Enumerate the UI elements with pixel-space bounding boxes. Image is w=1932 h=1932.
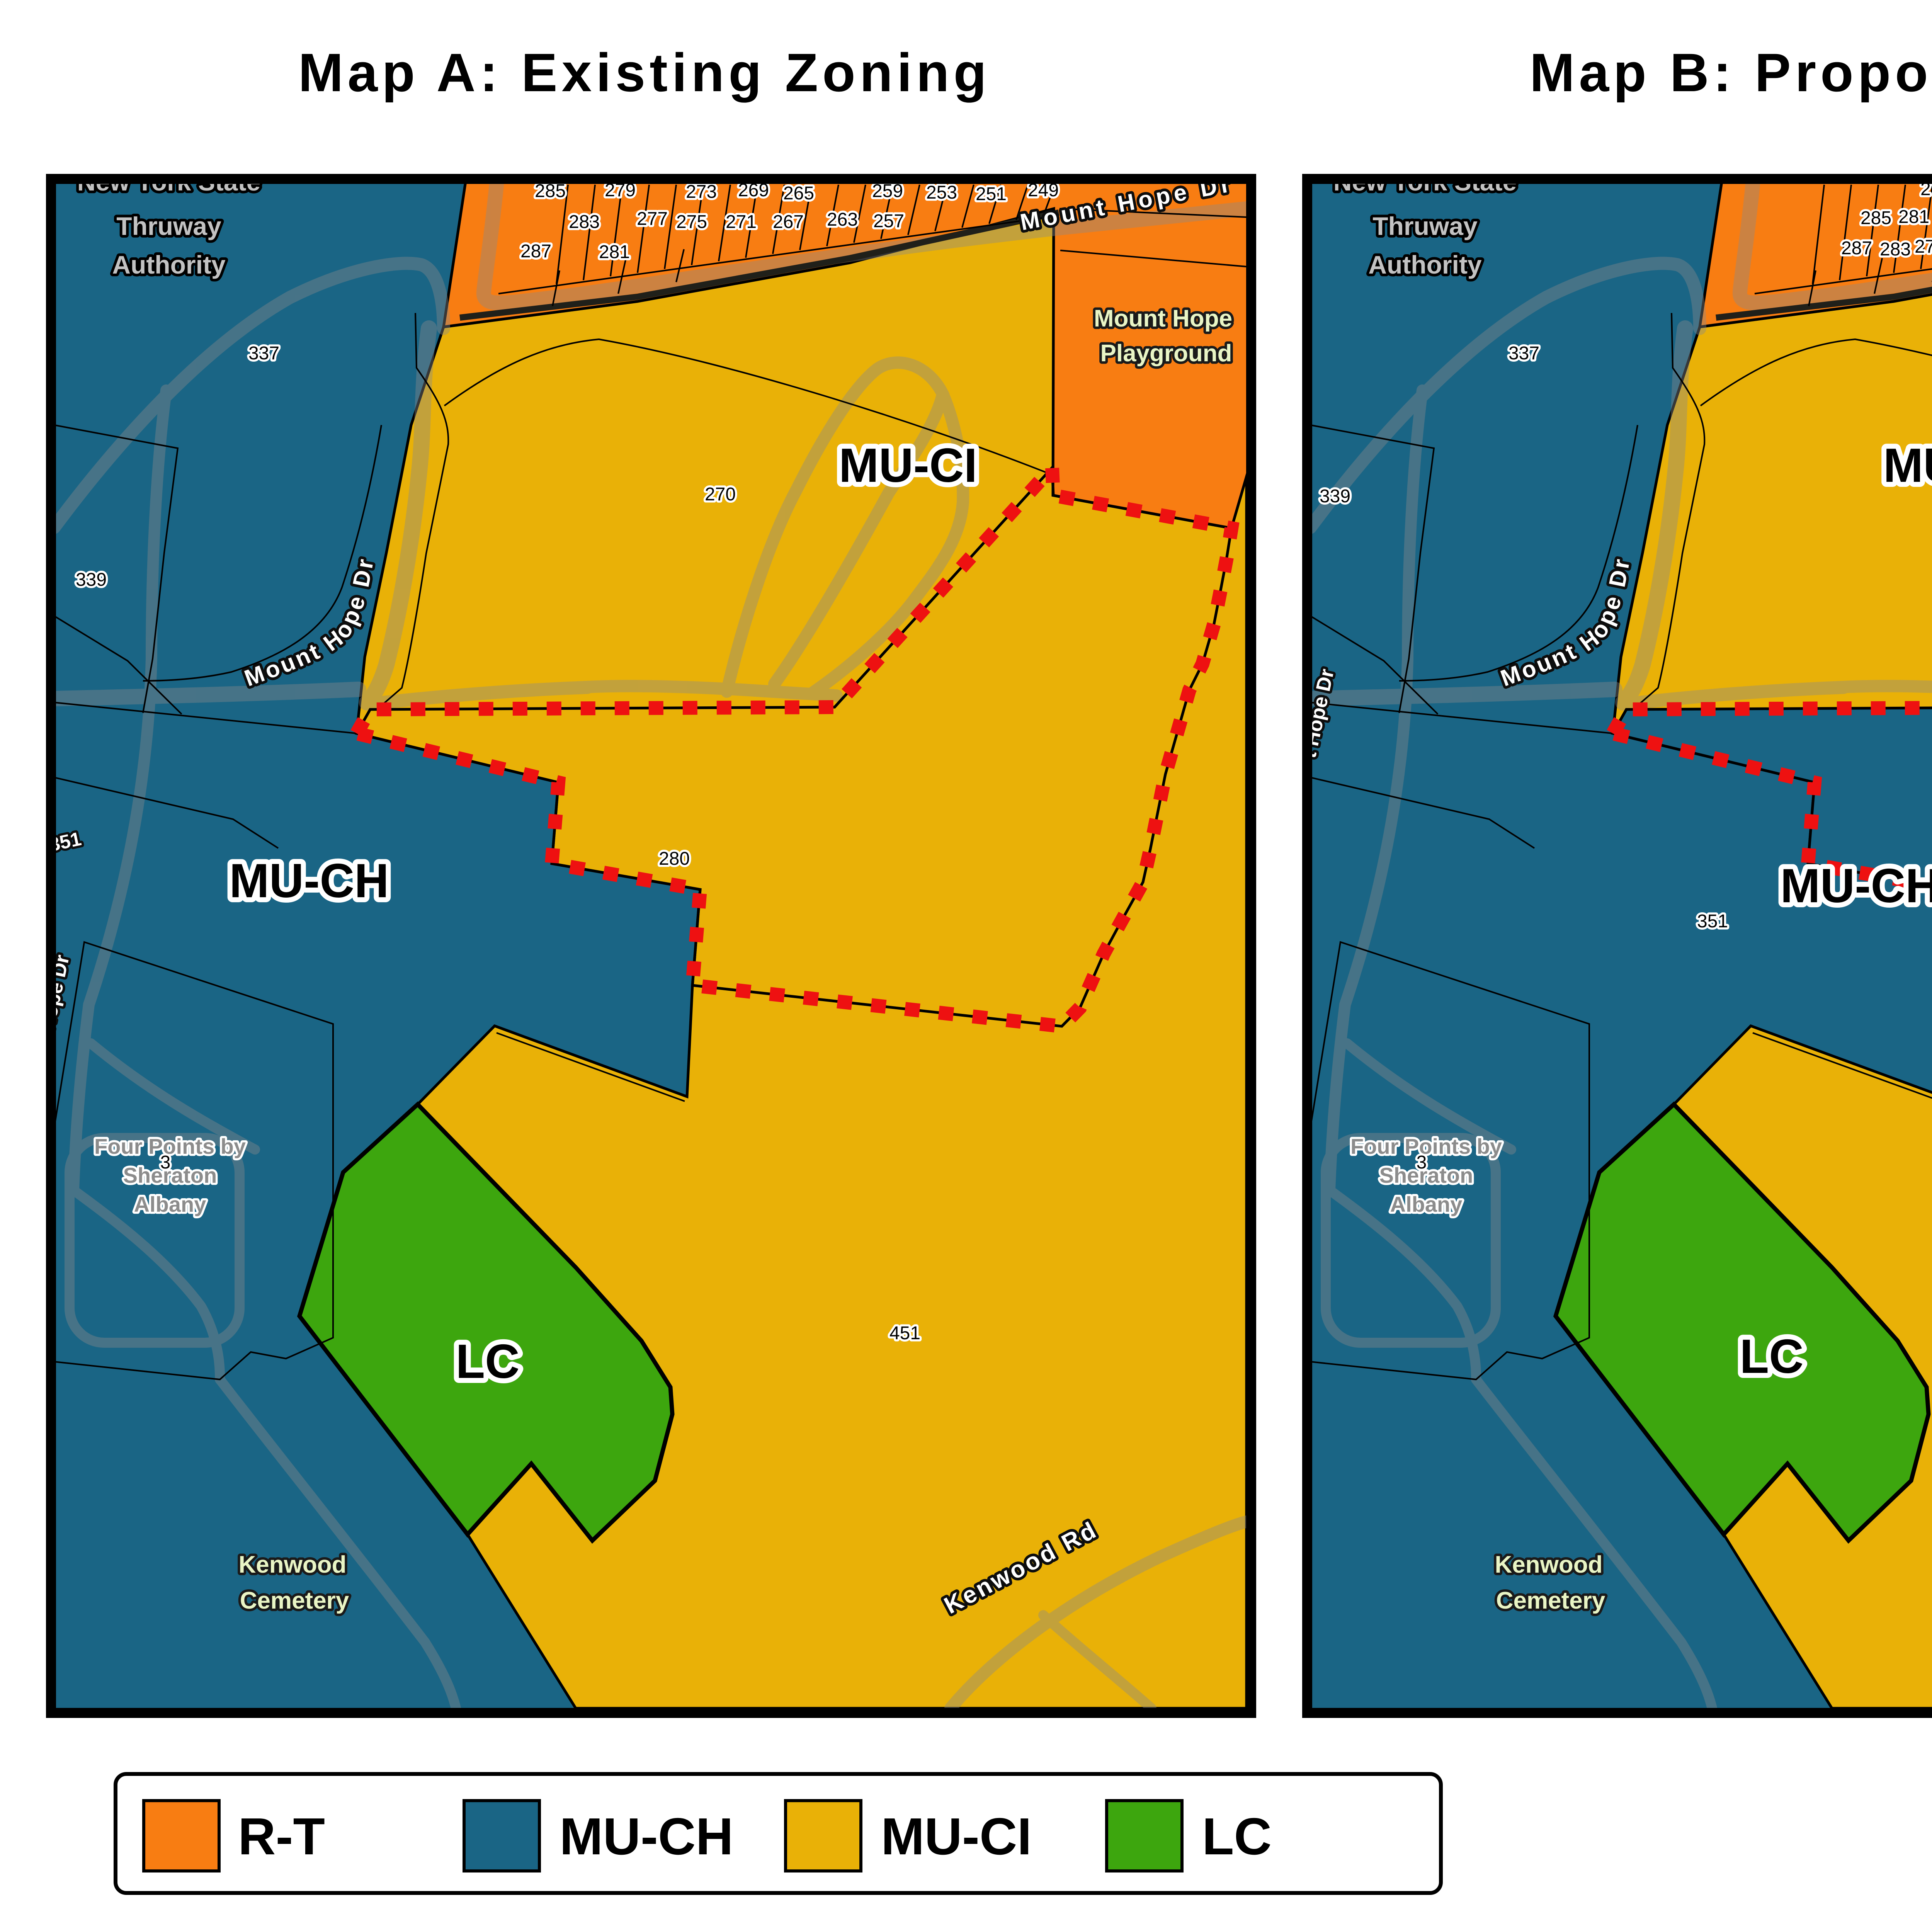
svg-text:451: 451 [889, 1323, 920, 1344]
svg-text:Cemetery: Cemetery [1496, 1587, 1605, 1614]
svg-text:253: 253 [926, 182, 957, 203]
svg-text:279: 279 [1915, 236, 1932, 257]
svg-text:267: 267 [773, 212, 804, 232]
svg-text:283: 283 [1880, 239, 1911, 260]
svg-text:3: 3 [1417, 1152, 1427, 1173]
svg-text:LC: LC [1202, 1807, 1272, 1866]
svg-text:Albany: Albany [1390, 1192, 1463, 1216]
svg-text:271: 271 [726, 212, 757, 232]
svg-text:Albany: Albany [134, 1192, 206, 1216]
svg-text:251: 251 [976, 184, 1007, 204]
svg-text:257: 257 [873, 211, 904, 231]
svg-text:339: 339 [1320, 486, 1350, 507]
svg-text:3: 3 [160, 1152, 171, 1173]
svg-text:Kenwood: Kenwood [239, 1551, 347, 1578]
svg-text:339: 339 [76, 570, 107, 590]
svg-text:Mount Hope: Mount Hope [1094, 305, 1232, 332]
svg-text:283: 283 [569, 212, 600, 232]
svg-text:275: 275 [676, 212, 707, 232]
svg-text:281: 281 [599, 242, 630, 262]
svg-text:281: 281 [1898, 207, 1929, 227]
svg-text:MU-CH: MU-CH [1780, 859, 1932, 913]
svg-text:280: 280 [659, 849, 690, 869]
svg-text:337: 337 [1509, 343, 1539, 364]
svg-text:Map B: Proposed Zoning: Map B: Proposed Zoning [1530, 42, 1932, 103]
svg-text:287: 287 [1841, 238, 1872, 259]
svg-text:Map A: Existing Zoning: Map A: Existing Zoning [298, 42, 991, 103]
svg-text:273: 273 [686, 182, 717, 202]
svg-text:MU-CH: MU-CH [229, 854, 389, 908]
svg-text:351: 351 [1697, 911, 1728, 932]
svg-text:Thruway: Thruway [116, 212, 221, 240]
svg-text:Cemetery: Cemetery [240, 1587, 349, 1614]
svg-text:MU-CI: MU-CI [881, 1807, 1032, 1866]
svg-text:Thruway: Thruway [1372, 212, 1478, 240]
svg-text:277: 277 [637, 209, 668, 229]
svg-text:Kenwood: Kenwood [1495, 1551, 1603, 1578]
svg-text:MU-CI: MU-CI [1883, 439, 1932, 492]
svg-text:LC: LC [1740, 1330, 1803, 1383]
svg-text:Authority: Authority [112, 250, 226, 279]
svg-text:287: 287 [520, 241, 551, 262]
svg-text:MU-CI: MU-CI [839, 439, 977, 492]
svg-text:R-T: R-T [238, 1807, 325, 1866]
svg-text:265: 265 [783, 183, 814, 204]
svg-text:263: 263 [827, 209, 858, 230]
svg-text:270: 270 [705, 484, 736, 505]
svg-text:337: 337 [248, 343, 279, 364]
svg-text:Authority: Authority [1368, 250, 1482, 279]
svg-text:MU-CH: MU-CH [560, 1807, 733, 1866]
svg-text:Playground: Playground [1100, 340, 1232, 367]
svg-text:285: 285 [1861, 208, 1891, 228]
svg-text:LC: LC [456, 1335, 519, 1388]
